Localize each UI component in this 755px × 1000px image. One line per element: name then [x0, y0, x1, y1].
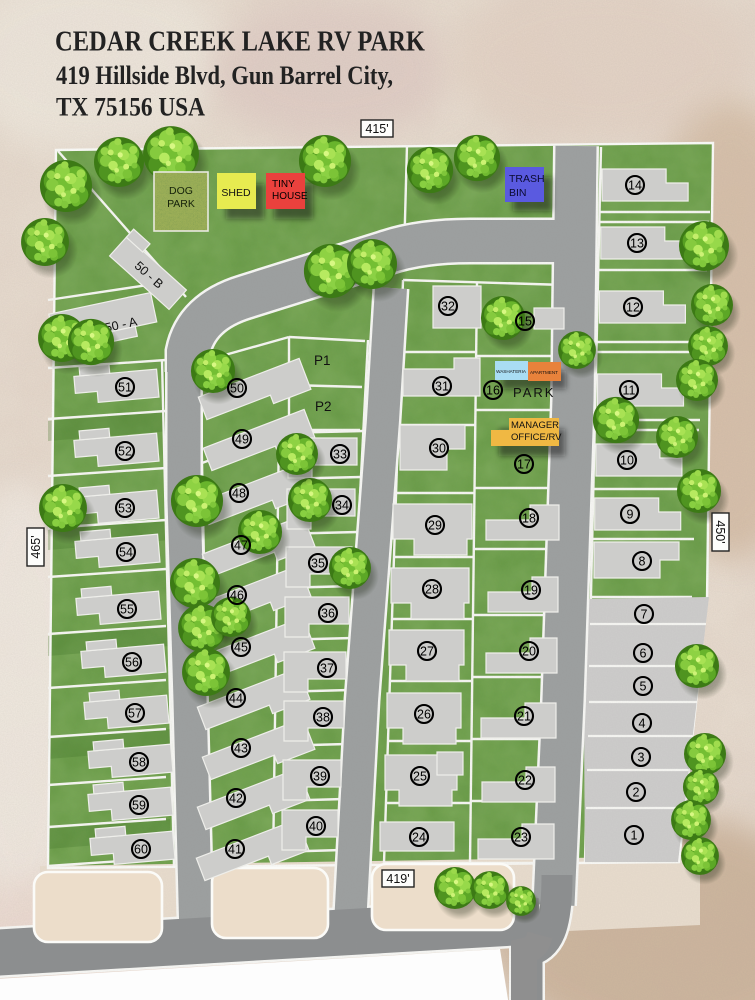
svg-text:38: 38 [316, 710, 330, 724]
svg-text:465': 465' [29, 535, 43, 558]
svg-text:48: 48 [232, 486, 246, 500]
svg-text:47: 47 [234, 538, 248, 552]
svg-text:29: 29 [428, 518, 442, 532]
svg-text:50: 50 [230, 381, 244, 395]
svg-text:OFFICE/RV: OFFICE/RV [511, 432, 562, 443]
svg-text:58: 58 [132, 755, 146, 769]
svg-text:46: 46 [230, 588, 244, 602]
svg-text:52: 52 [118, 444, 132, 458]
svg-text:TX 75156 USA: TX 75156 USA [56, 93, 205, 122]
svg-text:53: 53 [118, 501, 132, 515]
svg-text:30: 30 [432, 441, 446, 455]
svg-text:20: 20 [522, 644, 536, 658]
svg-text:17: 17 [517, 457, 531, 471]
svg-text:TRASH: TRASH [509, 173, 545, 185]
svg-text:12: 12 [626, 300, 640, 314]
svg-text:10: 10 [620, 453, 634, 467]
svg-text:25: 25 [413, 769, 427, 783]
svg-text:18: 18 [522, 511, 536, 525]
svg-text:16: 16 [486, 383, 500, 397]
svg-text:5: 5 [640, 679, 647, 693]
svg-text:26: 26 [417, 707, 431, 721]
svg-text:33: 33 [333, 447, 347, 461]
svg-text:DOG: DOG [169, 185, 193, 197]
svg-text:39: 39 [313, 769, 327, 783]
svg-text:41: 41 [228, 842, 242, 856]
svg-text:49: 49 [235, 432, 249, 446]
svg-text:MANAGER: MANAGER [511, 420, 559, 431]
svg-text:3: 3 [638, 750, 645, 764]
svg-text:CEDAR CREEK LAKE RV PARK: CEDAR CREEK LAKE RV PARK [55, 26, 425, 58]
svg-text:34: 34 [335, 498, 349, 512]
svg-text:35: 35 [311, 556, 325, 570]
svg-text:6: 6 [640, 646, 647, 660]
svg-text:9: 9 [627, 507, 634, 521]
svg-text:57: 57 [128, 706, 142, 720]
svg-text:56: 56 [125, 655, 139, 669]
svg-text:43: 43 [234, 741, 248, 755]
svg-text:59: 59 [132, 798, 146, 812]
svg-text:44: 44 [229, 691, 243, 705]
svg-text:60: 60 [134, 842, 148, 856]
svg-text:450': 450' [713, 520, 727, 543]
svg-text:45: 45 [234, 640, 248, 654]
svg-text:7: 7 [641, 607, 648, 621]
svg-text:40: 40 [309, 819, 323, 833]
svg-text:15: 15 [518, 314, 532, 328]
svg-text:14: 14 [628, 178, 642, 192]
svg-text:11: 11 [623, 383, 636, 397]
svg-text:4: 4 [639, 716, 646, 730]
svg-text:WASHATERIA: WASHATERIA [496, 369, 527, 374]
svg-text:P2: P2 [315, 399, 332, 414]
svg-text:32: 32 [441, 299, 455, 313]
svg-text:8: 8 [639, 554, 646, 568]
svg-text:TINY: TINY [272, 179, 295, 190]
svg-text:23: 23 [514, 830, 528, 844]
svg-text:415': 415' [365, 122, 388, 136]
svg-text:P1: P1 [314, 353, 331, 368]
svg-text:419 Hillside Blvd, Gun Barrel: 419 Hillside Blvd, Gun Barrel City, [56, 61, 393, 90]
svg-text:28: 28 [425, 582, 439, 596]
svg-text:1: 1 [631, 828, 638, 842]
svg-text:31: 31 [435, 379, 449, 393]
svg-text:37: 37 [320, 661, 334, 675]
svg-text:24: 24 [412, 830, 426, 844]
svg-text:36: 36 [321, 606, 335, 620]
svg-text:54: 54 [119, 545, 133, 559]
svg-text:22: 22 [518, 773, 532, 787]
svg-text:51: 51 [118, 380, 132, 394]
svg-text:55: 55 [120, 602, 134, 616]
svg-text:BIN: BIN [509, 187, 527, 199]
svg-text:21: 21 [517, 709, 531, 723]
svg-text:SHED: SHED [221, 187, 251, 199]
svg-text:2: 2 [633, 785, 640, 799]
svg-text:419': 419' [386, 872, 409, 886]
svg-text:APARTMENT: APARTMENT [530, 370, 558, 375]
svg-text:42: 42 [229, 791, 243, 805]
svg-text:27: 27 [420, 644, 434, 658]
svg-text:PARK: PARK [513, 385, 555, 400]
svg-text:13: 13 [630, 236, 644, 250]
svg-text:19: 19 [524, 583, 538, 597]
svg-text:PARK: PARK [167, 198, 195, 210]
svg-text:HOUSE: HOUSE [272, 191, 308, 202]
